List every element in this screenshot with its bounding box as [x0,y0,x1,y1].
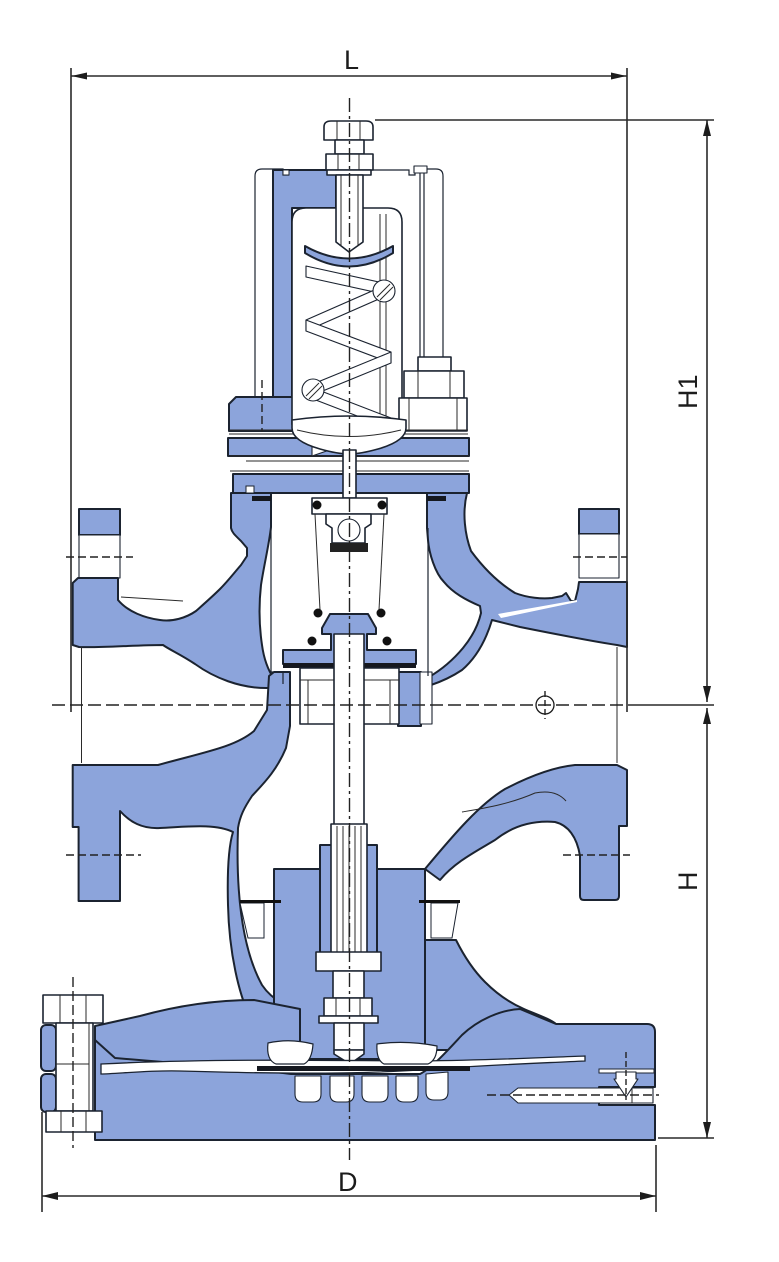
svg-text:D: D [338,1167,358,1197]
svg-text:H1: H1 [673,374,703,409]
svg-text:L: L [344,45,359,75]
svg-text:H: H [673,872,703,892]
